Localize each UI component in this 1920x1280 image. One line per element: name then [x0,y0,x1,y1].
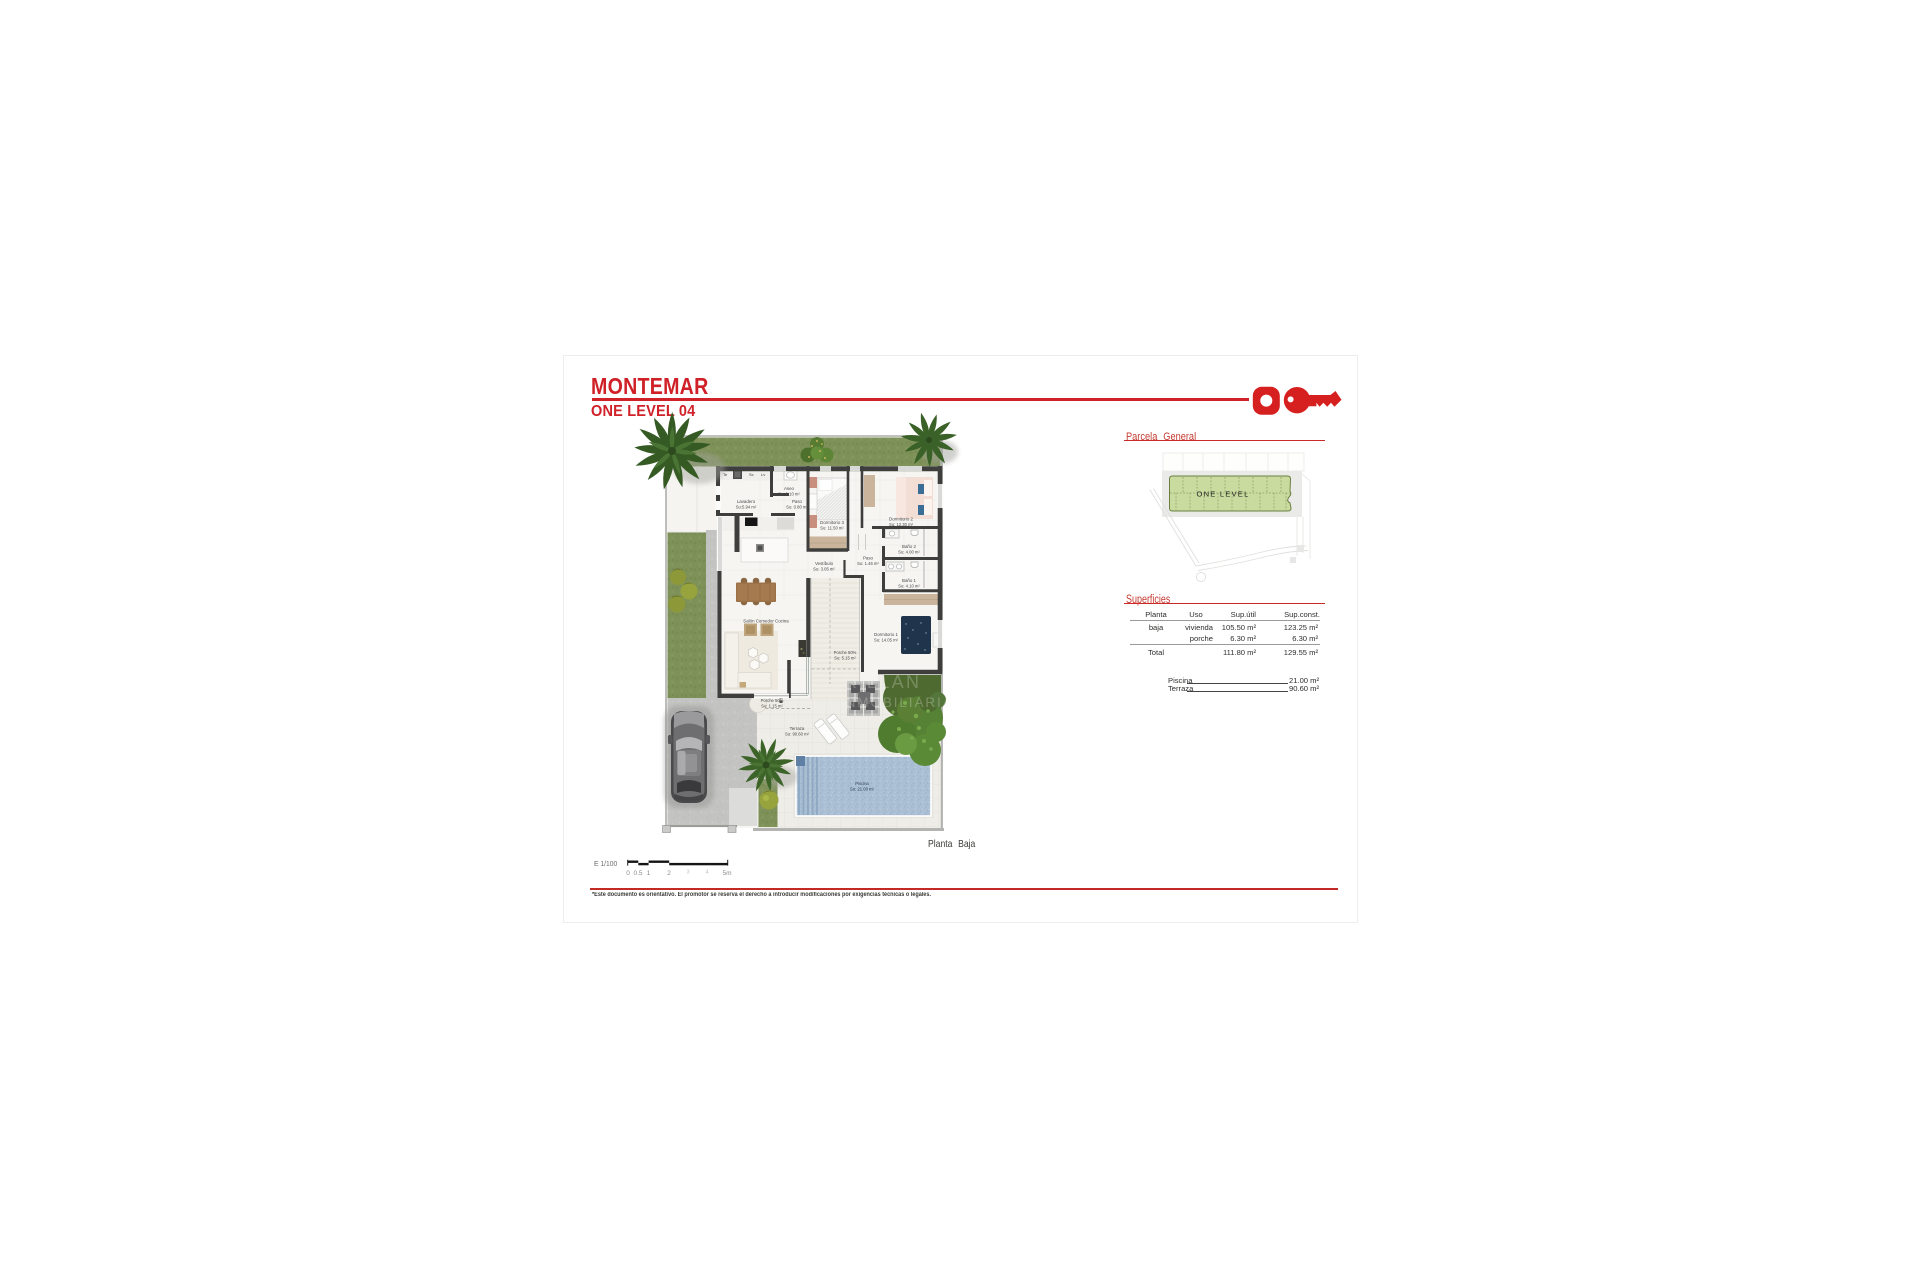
svg-text:4: 4 [705,870,708,876]
svg-text:5m: 5m [722,870,731,877]
svg-text:Su: 4.00 m²: Su: 4.00 m² [898,550,920,555]
svg-text:Dormitorio 3: Dormitorio 3 [820,520,844,525]
svg-text:0: 0 [626,870,630,877]
svg-text:Sc: Sc [749,472,754,477]
svg-text:1: 1 [647,870,651,877]
svg-text:Dormitorio 1: Dormitorio 1 [874,632,898,637]
svg-text:Porche 50%: Porche 50% [761,698,784,703]
svg-text:RILLAN: RILLAN [844,672,921,692]
svg-text:Vestíbulo: Vestíbulo [815,561,834,566]
svg-text:2: 2 [667,870,671,877]
svg-text:Su: 2.10 m²: Su: 2.10 m² [778,492,800,497]
svg-text:ONE LEVEL: ONE LEVEL [1196,490,1249,499]
svg-text:Su: 3.05 m²: Su: 3.05 m² [813,567,835,572]
svg-text:Su:5.94 m²: Su:5.94 m² [736,505,757,510]
svg-text:Su: 5.15 m²: Su: 5.15 m² [834,656,856,661]
svg-text:Dormitorio 2: Dormitorio 2 [889,517,913,522]
svg-text:Piscina: Piscina [855,781,869,786]
svg-text:Paso: Paso [863,556,874,561]
svg-text:INMOBILIARIA: INMOBILIARIA [840,695,954,710]
svg-text:Aseo: Aseo [784,486,795,491]
svg-text:Baño 1: Baño 1 [902,578,916,583]
svg-text:Su: 1.15 m²: Su: 1.15 m² [761,704,783,709]
svg-text:Paso: Paso [792,499,803,504]
svg-text:Porche 50%: Porche 50% [834,650,857,655]
svg-text:Su: 4.10 m²: Su: 4.10 m² [898,584,920,589]
svg-text:Terraza: Terraza [790,726,805,731]
svg-text:Su: 12.30 m²: Su: 12.30 m² [889,522,914,527]
svg-text:Su: 11.50 m²: Su: 11.50 m² [820,526,844,531]
svg-text:3: 3 [686,870,689,876]
svg-text:0.5: 0.5 [633,870,642,877]
svg-text:Su: 14.05 m²: Su: 14.05 m² [874,638,899,643]
svg-text:Salón Comedor Cocina: Salón Comedor Cocina [743,619,789,624]
svg-text:Lavadero: Lavadero [737,499,756,504]
svg-text:Su: 21.00 m²: Su: 21.00 m² [850,787,875,792]
svg-text:Lv: Lv [761,472,765,477]
svg-text:Baño 2: Baño 2 [902,544,916,549]
svg-text:Su: 0.80 m²: Su: 0.80 m² [786,505,808,510]
svg-text:Su: 1.46 m²: Su: 1.46 m² [857,561,879,566]
svg-text:Su: 90.60 m²: Su: 90.60 m² [785,732,810,737]
